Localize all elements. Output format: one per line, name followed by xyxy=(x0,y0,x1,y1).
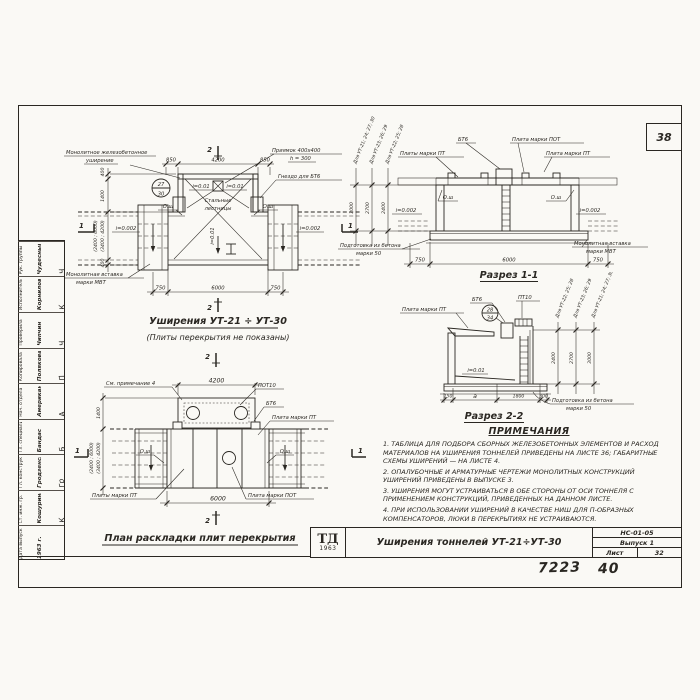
height-dim-value: 3000 xyxy=(587,352,593,364)
note-item: 2. Опалубочные и арматурные чертежи моно… xyxy=(383,468,675,485)
roof-slabs xyxy=(398,169,617,185)
stamp-name: Бандас xyxy=(37,422,43,453)
stamp-name: Американский xyxy=(37,386,43,417)
slope-right: i=0.01 xyxy=(226,184,243,190)
dim-value: 750 xyxy=(415,258,426,264)
drawing-title: Разрез 2-2 xyxy=(465,411,524,422)
slope-left: i=0.01 xyxy=(192,184,209,190)
section-1-1-drawing: Для УТ-21; 24; 27; 30 Для УТ-23; 26; 29 … xyxy=(336,112,666,284)
pit-square xyxy=(213,181,223,191)
axis-left: О.ш xyxy=(163,204,174,210)
label-ladders: лестницы xyxy=(204,206,232,212)
stamp-signature: К xyxy=(52,279,65,311)
logo-year: 1963 xyxy=(319,547,336,553)
height-dim-value: 2400 xyxy=(551,352,557,364)
section2-title: Разрез 2-2 xyxy=(464,411,524,423)
sheet-title: Уширения тоннелей УТ-21÷УТ-30 xyxy=(346,528,592,557)
label-pot10: ПОТ10 xyxy=(258,383,276,389)
stamp-name: Корнилов xyxy=(37,280,43,311)
stamp-signature: Б xyxy=(52,421,65,453)
stamp-name: Гродзенский xyxy=(37,457,43,488)
dim-value: 1800 xyxy=(513,394,525,400)
dim-value: 300 xyxy=(539,394,548,400)
stamp-role: Копировала xyxy=(19,351,24,382)
document-code: НС-01-05 xyxy=(593,528,681,538)
axis-left: О.ш xyxy=(443,195,454,201)
detail-bubble: 27 30 xyxy=(152,179,170,198)
dim-value: (3400 ; 4200) xyxy=(100,220,106,252)
dim-value: 400 xyxy=(100,259,106,268)
stamp-role: Гл. специалист xyxy=(19,422,24,453)
side-stamp-rotated: Дата выпуска 1963 г. Ст. инж. гр. Кошури… xyxy=(18,241,65,560)
slab-field xyxy=(167,429,269,488)
side-stamp: Дата выпуска 1963 г. Ст. инж. гр. Кошури… xyxy=(18,240,65,560)
notes-list: 1. Таблица для подбора сборных железобет… xyxy=(383,440,675,523)
height-dim-value: 2400 xyxy=(381,202,387,214)
dim-value: (3400 ; 4200) xyxy=(96,442,102,474)
slope-label: i=0.01 xyxy=(467,368,484,374)
notes-block: Примечания 1. Таблица для подбора сборны… xyxy=(383,426,675,525)
monolithic-insert-right xyxy=(268,205,298,270)
label-insert: марки МВТ xyxy=(76,280,107,286)
stamp-signature: Ч xyxy=(52,314,65,346)
stamp-row: Рук. группы Чудесный Ч xyxy=(18,241,65,277)
stamp-row: Гл. специалист Бандас Б xyxy=(18,419,65,455)
slope-edge-left: i=0.002 xyxy=(116,226,137,232)
detail-bottom: 34 xyxy=(487,316,494,322)
dim-value: 6000 xyxy=(211,286,225,292)
stamp-role: Исполнитель xyxy=(19,280,24,311)
sheet-number: 32 xyxy=(638,548,682,557)
stamp-name: Чудесный xyxy=(37,244,43,275)
dim-value: 1400 xyxy=(96,407,102,419)
stamp-name: Чипчин xyxy=(37,315,43,346)
section-mark-2: 2 xyxy=(207,304,212,312)
section-mark-2: 2 xyxy=(207,146,212,154)
stamp-row: Нач. отдела Американский А xyxy=(18,383,65,419)
label-pit: Приямок 400х400 xyxy=(272,148,321,154)
section-2-2-drawing: 28 34 Плита марки ПТ БТ6 ПТ10 i=0.01 Под… xyxy=(336,272,666,424)
stamp-signature: К xyxy=(52,492,65,524)
center-arrow xyxy=(216,236,220,254)
label-prep: марки 50 xyxy=(356,251,382,257)
label-pot: Плита марки ПОТ xyxy=(248,493,297,499)
drawing-title: Уширения УТ-21 ÷ УТ-30 xyxy=(149,316,287,327)
height-dim-value: 2700 xyxy=(569,352,575,364)
label-pot: Плита марки ПОТ xyxy=(512,137,561,143)
stamp-signature: А xyxy=(52,386,65,418)
dim-value: (2400 ; 6000) xyxy=(89,442,95,474)
i-beam-symbol xyxy=(226,244,236,254)
plan-bottom-drawing: О.ш О.ш 4200 6000 1400 (2400 ; 6000) (34… xyxy=(60,345,380,557)
label-bt6: БТ6 xyxy=(266,401,277,407)
stamp-signature xyxy=(52,528,65,560)
detail-top: 27 xyxy=(158,182,165,188)
height-dim-lines: Для УТ-21; 24; 27; 30 Для УТ-23; 26; 29 … xyxy=(349,116,436,246)
label-pt: Плита марки ПТ xyxy=(402,307,447,313)
plan-top-title: Уширения УТ-21 ÷ УТ-30 (Плиты перекрытия… xyxy=(147,316,290,342)
slope-left: i=0.002 xyxy=(396,208,417,214)
label-bt6: БТ6 xyxy=(458,137,469,143)
dim-value: 850 xyxy=(166,158,177,164)
label-pt-right: Плита марки ПТ xyxy=(546,151,591,157)
slope-mid: i=0.01 xyxy=(210,227,216,244)
label-socket: Гнездо для БТ6 xyxy=(278,174,321,180)
section-mark-2: 2 xyxy=(205,353,210,361)
handwritten-number-right: 40 xyxy=(598,561,620,578)
label-pt-plural: Плиты марки ПТ xyxy=(92,493,138,499)
detail-top: 28 xyxy=(487,308,494,314)
niche-slab xyxy=(173,398,260,429)
title-block: ТД 1963 Уширения тоннелей УТ-21÷УТ-30 НС… xyxy=(310,527,682,558)
dim-value: 150 xyxy=(444,394,453,400)
height-dim-value: 3000 xyxy=(349,202,355,214)
dim-top: 850 4200 850 xyxy=(162,158,274,176)
dim-value: 750 xyxy=(593,258,604,264)
stamp-row: Ст. инж. гр. Кошурина К xyxy=(18,490,65,526)
height-dim-value: 2700 xyxy=(365,202,371,214)
detail-bottom: 30 xyxy=(158,192,165,198)
dim-value: 850 xyxy=(260,158,271,164)
stamp-role: Дата выпуска xyxy=(19,528,24,559)
note-item: 3. Уширения могут устраиваться в обе сто… xyxy=(383,487,675,504)
sheet-label: Лист xyxy=(593,548,638,557)
axis-right: О.ш xyxy=(280,449,291,455)
height-dim-label: Для УТ-23; 26; 29 xyxy=(572,278,594,320)
stamp-role: Проверила xyxy=(19,315,24,346)
floor-slab xyxy=(398,221,620,243)
height-dim-label: Для УТ-21; 24; 27; 30 xyxy=(590,272,615,320)
stamp-role: Рук. группы xyxy=(19,244,24,275)
label-pit: h = 300 xyxy=(290,156,312,162)
dim-value: 6000 xyxy=(502,258,516,264)
handwritten-number-left: 7223 xyxy=(538,559,581,576)
dim-value: 6000 xyxy=(210,496,226,503)
label-widening: уширение xyxy=(85,158,114,164)
stamp-signature: П xyxy=(52,350,65,382)
label-insert: Монолитная вставка xyxy=(66,272,123,278)
label-bt6: БТ6 xyxy=(472,297,483,303)
note-item: 1. Таблица для подбора сборных железобет… xyxy=(383,440,675,466)
stamp-name: 1963 г. xyxy=(37,528,43,559)
stamp-row: Дата выпуска 1963 г. xyxy=(18,525,65,560)
axis-right: О.ш xyxy=(551,195,562,201)
titleblock-right: НС-01-05 Выпуск 1 Лист 32 xyxy=(592,528,681,557)
issue-label: Выпуск 1 xyxy=(593,538,681,548)
label-insert: марки МВТ xyxy=(586,249,617,255)
drawing-title: План раскладки плит перекрытия xyxy=(104,533,295,544)
section-mark-1: 1 xyxy=(358,447,363,455)
label-prep: марки 50 xyxy=(566,406,592,412)
label-pt10: ПТ10 xyxy=(518,295,532,301)
stamp-name: Полякова xyxy=(37,351,43,382)
axis-right: О.ш xyxy=(263,204,274,210)
tunnel-walls xyxy=(78,212,360,265)
height-dim-lines: Для УТ-22; 25; 28 Для УТ-23; 26; 29 Для … xyxy=(533,272,615,394)
walls-and-ladder xyxy=(436,185,579,231)
label-widening: Монолитное железобетонное xyxy=(66,150,147,156)
stamp-row: Проверила Чипчин Ч xyxy=(18,312,65,348)
stamp-signature: Ч xyxy=(52,243,65,275)
section-mark-1: 1 xyxy=(75,447,80,455)
label-prep: Подготовка из бетона xyxy=(552,398,613,404)
stamp-role: Ст. инж. гр. xyxy=(19,493,24,524)
label-ladders: Стальные xyxy=(205,198,232,204)
slope-edge-right: i=0.002 xyxy=(300,226,321,232)
label-pt: Плита марки ПТ xyxy=(272,415,317,421)
label-note-ref: См. примечание 4 xyxy=(106,381,155,387)
stamp-role: Гл. конструктор xyxy=(19,457,24,488)
stamp-role: Нач. отдела xyxy=(19,386,24,417)
stamp-name: Кошурина xyxy=(37,493,43,524)
notes-heading: Примечания xyxy=(383,426,675,437)
monolithic-insert-left xyxy=(138,205,168,270)
note-item: 4. При использовании уширений в качестве… xyxy=(383,506,675,523)
logo-td: ТД xyxy=(317,533,338,546)
dim-value: 750 xyxy=(271,286,282,292)
drawing-sheet: { "sheet": { "corner_number": "38", "sta… xyxy=(0,0,700,700)
sheet-number-row: Лист 32 xyxy=(593,548,681,557)
plan-bottom-title: План раскладки плит перекрытия xyxy=(102,533,298,545)
stamp-row: Копировала Полякова П xyxy=(18,348,65,384)
logo-box: ТД 1963 xyxy=(311,528,346,557)
dim-value: 1400 xyxy=(100,190,106,202)
axis-left: О.ш xyxy=(140,449,151,455)
dim-value: а xyxy=(473,393,477,400)
drawing-subtitle: (Плиты перекрытия не показаны) xyxy=(147,333,290,342)
label-pt-left: Плиты марки ПТ xyxy=(400,151,446,157)
label-prep: Подготовка из бетона xyxy=(340,243,401,249)
dim-value: 750 xyxy=(156,286,167,292)
slope-right: i=0.002 xyxy=(580,208,601,214)
stamp-row: Исполнитель Корнилов К xyxy=(18,277,65,313)
height-dim-label: Для УТ-22; 25; 28 xyxy=(554,278,576,320)
dim-value: 4200 xyxy=(209,378,225,385)
stamp-row: Гл. конструктор Гродзенский Гр xyxy=(18,454,65,490)
stamp-signature: Гр xyxy=(52,457,65,489)
section-mark-1: 1 xyxy=(79,222,84,230)
section-mark-2: 2 xyxy=(205,517,210,525)
dim-value: 400 xyxy=(100,168,106,177)
dim-bottom: 750 6000 750 xyxy=(147,268,289,296)
